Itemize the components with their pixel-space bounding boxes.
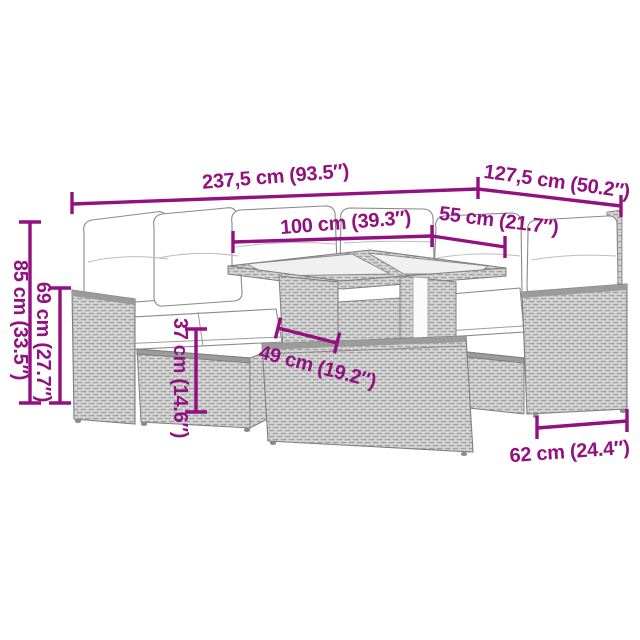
left-armrest [72, 290, 135, 424]
diagram-svg: 237,5 cm (93.5″) 127,5 cm (50.2″) 100 cm… [0, 0, 640, 640]
left-armrest-panel [72, 290, 135, 424]
dimension-stool-width: 62 cm (24.4″) [509, 409, 630, 467]
furniture-illustration [72, 206, 627, 456]
dimension-overall-length-label: 237,5 cm (93.5″) [201, 160, 349, 193]
dimension-back-height: 69 cm (27.7″) [32, 282, 71, 403]
right-armrest-panel [522, 284, 627, 414]
dimension-back-height-label: 69 cm (27.7″) [32, 282, 54, 402]
dimension-seat-height-label: 37 cm (14.6″) [169, 318, 191, 438]
dimension-overall-depth: 127,5 cm (50.2″) [478, 161, 631, 217]
dimension-stool-width-label: 62 cm (24.4″) [509, 437, 630, 467]
dimension-diagram: 237,5 cm (93.5″) 127,5 cm (50.2″) 100 cm… [0, 0, 640, 640]
dimension-total-height-label: 85 cm (33.5″) [9, 260, 31, 380]
right-armrest [522, 284, 627, 414]
table-leg-highlight [413, 277, 428, 341]
dimension-overall-length: 237,5 cm (93.5″) [72, 160, 478, 214]
